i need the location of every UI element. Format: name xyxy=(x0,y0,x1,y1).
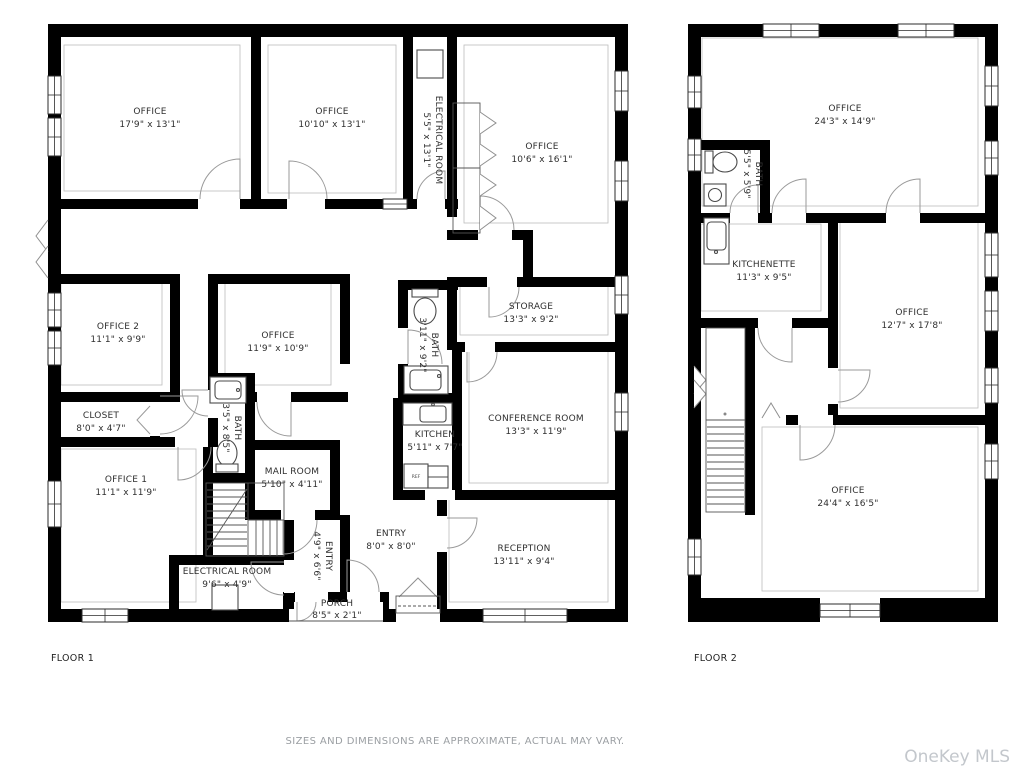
cabinet-icon xyxy=(428,466,448,488)
svg-text:KITCHEN: KITCHEN xyxy=(415,430,455,440)
svg-text:KITCHENETTE: KITCHENETTE xyxy=(732,260,796,270)
svg-text:24'3" x 14'9": 24'3" x 14'9" xyxy=(814,117,875,127)
svg-text:ELECTRICAL ROOM: ELECTRICAL ROOM xyxy=(183,567,272,577)
floor1-title: FLOOR 1 xyxy=(51,653,94,664)
toilet-icon xyxy=(705,151,737,173)
bay-window-icon xyxy=(36,220,48,252)
svg-text:13'11" x 9'4": 13'11" x 9'4" xyxy=(493,557,554,567)
svg-text:4'9" x 6'6": 4'9" x 6'6" xyxy=(311,531,321,580)
svg-text:17'9" x 13'1": 17'9" x 13'1" xyxy=(119,120,180,130)
svg-text:13'3" x 9'2": 13'3" x 9'2" xyxy=(503,315,558,325)
svg-text:12'7" x 17'8": 12'7" x 17'8" xyxy=(881,321,942,331)
svg-text:CONFERENCE ROOM: CONFERENCE ROOM xyxy=(488,414,584,424)
window xyxy=(48,293,61,327)
svg-text:OFFICE: OFFICE xyxy=(828,104,861,114)
svg-text:OFFICE: OFFICE xyxy=(315,107,348,117)
svg-text:ENTRY: ENTRY xyxy=(376,529,406,539)
window xyxy=(615,71,628,111)
svg-text:10'10" x 13'1": 10'10" x 13'1" xyxy=(298,120,365,130)
window xyxy=(483,609,567,622)
svg-text:8'0" x 8'0": 8'0" x 8'0" xyxy=(366,542,415,552)
window xyxy=(48,118,61,156)
svg-text:5'5" x 5'9": 5'5" x 5'9" xyxy=(741,149,751,198)
svg-text:3'5" x 8'5": 3'5" x 8'5" xyxy=(220,403,230,452)
window xyxy=(688,139,701,171)
svg-text:3'11" x 9'2": 3'11" x 9'2" xyxy=(417,317,427,372)
svg-text:10'6" x 16'1": 10'6" x 16'1" xyxy=(511,155,572,165)
svg-text:OFFICE: OFFICE xyxy=(261,331,294,341)
window xyxy=(820,604,880,617)
svg-text:9'6" x 4'9": 9'6" x 4'9" xyxy=(202,580,251,590)
window xyxy=(688,76,701,108)
svg-text:CLOSET: CLOSET xyxy=(83,411,119,421)
svg-text:OFFICE: OFFICE xyxy=(525,142,558,152)
svg-text:OFFICE 2: OFFICE 2 xyxy=(97,322,139,332)
svg-text:RECEPTION: RECEPTION xyxy=(497,544,550,554)
svg-text:11'1" x 11'9": 11'1" x 11'9" xyxy=(95,488,156,498)
svg-text:8'0" x 4'7": 8'0" x 4'7" xyxy=(76,424,125,434)
sink-icon xyxy=(704,184,726,206)
svg-text:24'4" x 16'5": 24'4" x 16'5" xyxy=(817,499,878,509)
window xyxy=(985,291,998,331)
svg-text:5'5" x 13'1": 5'5" x 13'1" xyxy=(421,112,431,167)
kitchen-counter-sink-icon xyxy=(403,403,452,425)
refrigerator-label: REF xyxy=(412,474,421,480)
svg-text:BATH: BATH xyxy=(232,416,242,441)
window xyxy=(48,481,61,527)
svg-text:BATH: BATH xyxy=(753,162,763,187)
svg-text:OFFICE: OFFICE xyxy=(831,486,864,496)
watermark-text: OneKey MLS xyxy=(904,747,1010,767)
svg-text:13'3" x 11'9": 13'3" x 11'9" xyxy=(505,427,566,437)
window xyxy=(615,393,628,431)
sink-icon xyxy=(210,377,246,403)
svg-text:ELECTRICAL ROOM: ELECTRICAL ROOM xyxy=(433,96,443,185)
kitchenette-counter-sink-icon xyxy=(704,218,729,264)
floorplan-drawing: OFFICE17'9" x 13'1" OFFICE10'10" x 13'1"… xyxy=(0,0,1024,768)
window xyxy=(985,368,998,403)
electrical-panel-icon xyxy=(417,50,443,78)
window xyxy=(383,199,407,209)
svg-text:11'3" x 9'5": 11'3" x 9'5" xyxy=(736,273,791,283)
svg-text:5'11" x 7'7": 5'11" x 7'7" xyxy=(407,443,462,453)
svg-text:8'5" x 2'1": 8'5" x 2'1" xyxy=(312,611,361,621)
window xyxy=(615,276,628,314)
window xyxy=(82,609,128,622)
floorplan-canvas: OFFICE17'9" x 13'1" OFFICE10'10" x 13'1"… xyxy=(0,0,1024,768)
svg-text:5'10" x 4'11": 5'10" x 4'11" xyxy=(261,480,322,490)
svg-text:ENTRY: ENTRY xyxy=(323,541,333,571)
window xyxy=(985,444,998,479)
window xyxy=(688,539,701,575)
disclaimer-text: SIZES AND DIMENSIONS ARE APPROXIMATE, AC… xyxy=(286,736,625,747)
window xyxy=(48,76,61,114)
window xyxy=(48,331,61,365)
floor2-title: FLOOR 2 xyxy=(694,653,737,664)
svg-text:OFFICE: OFFICE xyxy=(133,107,166,117)
window xyxy=(615,161,628,201)
svg-text:OFFICE 1: OFFICE 1 xyxy=(105,475,147,485)
svg-text:PORCH: PORCH xyxy=(321,599,353,609)
svg-text:STORAGE: STORAGE xyxy=(509,302,553,312)
window xyxy=(898,24,954,37)
bay-window-icon xyxy=(36,246,48,278)
window xyxy=(763,24,819,37)
svg-text:11'9" x 10'9": 11'9" x 10'9" xyxy=(247,344,308,354)
window xyxy=(985,141,998,175)
svg-text:11'1" x 9'9": 11'1" x 9'9" xyxy=(90,335,145,345)
window xyxy=(985,66,998,106)
svg-text:MAIL ROOM: MAIL ROOM xyxy=(265,467,319,477)
svg-text:BATH: BATH xyxy=(429,333,439,358)
window xyxy=(985,233,998,277)
svg-text:OFFICE: OFFICE xyxy=(895,308,928,318)
